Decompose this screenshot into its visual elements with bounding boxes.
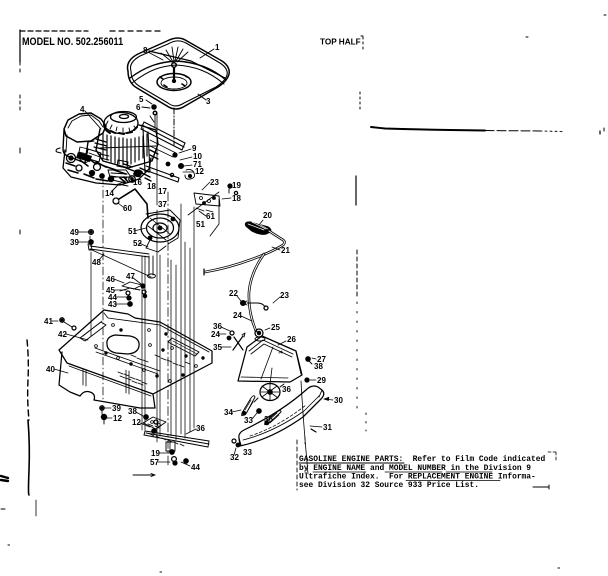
svg-text:32: 32 [230, 453, 239, 462]
svg-text:39: 39 [70, 238, 79, 247]
svg-text:20: 20 [263, 211, 272, 220]
svg-text:MODEL NO. 502.256011: MODEL NO. 502.256011 [22, 36, 124, 48]
svg-text:38: 38 [128, 407, 137, 416]
svg-text:17: 17 [158, 187, 167, 196]
svg-text:35: 35 [213, 343, 222, 352]
svg-text:34: 34 [224, 408, 233, 417]
svg-text:46: 46 [106, 275, 115, 284]
svg-text:26: 26 [287, 335, 296, 344]
svg-text:see Division 32 Source 933 Pri: see Division 32 Source 933 Price List. [299, 481, 479, 490]
svg-text:24: 24 [233, 311, 242, 320]
svg-text:33: 33 [244, 416, 253, 425]
svg-text:12: 12 [113, 414, 122, 423]
svg-text:31: 31 [323, 423, 332, 432]
svg-text:39: 39 [112, 404, 121, 413]
svg-text:33: 33 [243, 448, 252, 457]
svg-text:37: 37 [158, 200, 167, 209]
svg-text:TOP HALF: TOP HALF [320, 38, 361, 47]
svg-text:16: 16 [133, 178, 142, 187]
svg-text:23: 23 [210, 178, 219, 187]
svg-text:12: 12 [195, 167, 204, 176]
svg-text:51: 51 [196, 220, 205, 229]
svg-text:6: 6 [136, 103, 141, 112]
svg-text:4: 4 [80, 105, 85, 114]
svg-text:1: 1 [215, 43, 220, 52]
svg-text:23: 23 [280, 291, 289, 300]
svg-text:21: 21 [281, 246, 290, 255]
svg-text:61: 61 [206, 212, 215, 221]
svg-text:12: 12 [132, 418, 141, 427]
svg-text:38: 38 [314, 362, 323, 371]
svg-text:44: 44 [191, 463, 200, 472]
svg-text:41: 41 [44, 317, 53, 326]
svg-text:18: 18 [147, 182, 156, 191]
svg-text:43: 43 [108, 300, 117, 309]
svg-text:42: 42 [58, 330, 67, 339]
svg-text:57: 57 [150, 458, 159, 467]
svg-text:47: 47 [126, 272, 135, 281]
svg-text:60: 60 [123, 204, 132, 213]
svg-text:3: 3 [206, 97, 211, 106]
svg-text:25: 25 [271, 323, 280, 332]
svg-text:19: 19 [232, 181, 241, 190]
svg-text:19: 19 [151, 449, 160, 458]
svg-text:36: 36 [196, 424, 205, 433]
svg-text:40: 40 [46, 365, 55, 374]
svg-text:30: 30 [334, 396, 343, 405]
svg-text:8: 8 [143, 46, 148, 55]
svg-text:24: 24 [211, 330, 220, 339]
svg-text:36: 36 [282, 385, 291, 394]
svg-text:51: 51 [128, 227, 137, 236]
svg-text:18: 18 [232, 194, 241, 203]
svg-text:49: 49 [70, 228, 79, 237]
svg-text:29: 29 [317, 376, 326, 385]
